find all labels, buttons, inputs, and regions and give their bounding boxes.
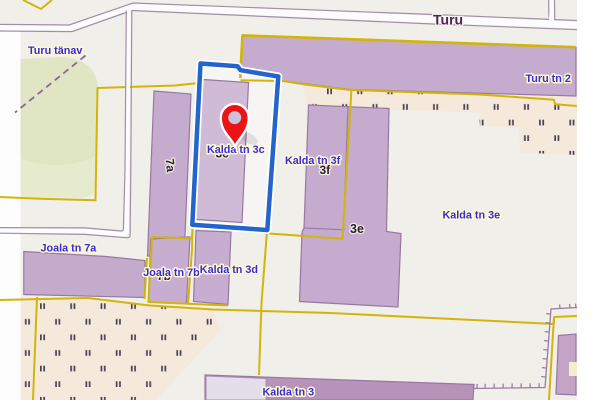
svg-text:Joala tn 7a: Joala tn 7a — [41, 243, 98, 255]
svg-text:Kalda tn 3e: Kalda tn 3e — [443, 210, 501, 222]
svg-text:Turu tn 2: Turu tn 2 — [526, 73, 571, 85]
svg-text:Kalda tn 3f: Kalda tn 3f — [285, 155, 341, 167]
svg-text:Kalda tn 3d: Kalda tn 3d — [200, 264, 258, 276]
svg-text:3e: 3e — [350, 222, 364, 236]
svg-text:7a: 7a — [163, 158, 178, 173]
svg-text:Joala tn 7b: Joala tn 7b — [143, 267, 200, 279]
svg-text:Turu: Turu — [433, 12, 463, 28]
svg-text:Kalda tn 3: Kalda tn 3 — [263, 387, 315, 399]
svg-text:Turu tänav: Turu tänav — [28, 45, 82, 57]
